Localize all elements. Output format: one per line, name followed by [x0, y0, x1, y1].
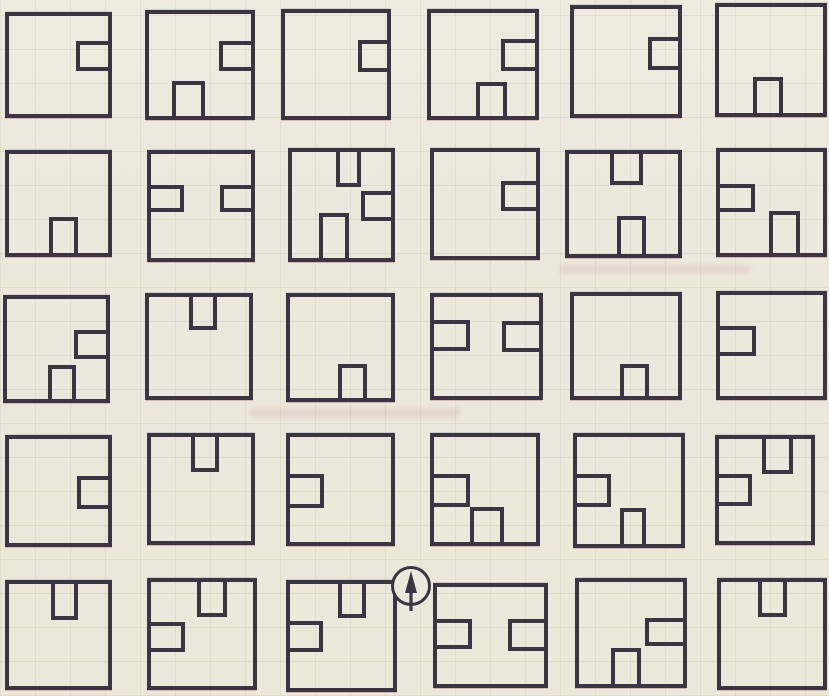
bleedthrough-smudge [560, 265, 750, 274]
puzzle-square-r1c5 [716, 148, 827, 257]
inner-square-top [191, 437, 219, 472]
puzzle-square-r4c0 [5, 580, 112, 690]
puzzle-square-r3c5 [715, 435, 815, 545]
puzzle-square-r3c1 [147, 433, 255, 545]
inner-square-bottom [753, 77, 783, 113]
inner-square-left [434, 320, 470, 352]
inner-square-right [361, 191, 391, 221]
puzzle-square-r2c4 [570, 292, 682, 400]
up-arrow-glyph [394, 569, 428, 615]
inner-square-right [77, 476, 108, 508]
inner-square-right [502, 321, 539, 353]
inner-square-left [151, 622, 185, 652]
puzzle-square-r2c5 [716, 291, 827, 400]
puzzle-square-r0c4 [570, 5, 682, 118]
puzzle-square-r2c2 [286, 293, 395, 402]
puzzle-square-r1c1 [147, 150, 255, 262]
puzzle-square-r1c2 [288, 148, 395, 262]
inner-square-right [76, 41, 108, 71]
puzzle-square-r0c3 [427, 9, 539, 120]
puzzle-square-r1c4 [565, 150, 682, 258]
inner-square-left [290, 474, 324, 509]
puzzle-square-r3c2 [286, 433, 395, 546]
puzzle-square-r4c5 [717, 578, 827, 690]
inner-square-left [434, 474, 470, 508]
puzzle-square-r2c0 [3, 295, 110, 403]
inner-square-left [720, 184, 755, 211]
inner-square-bottom [470, 507, 505, 542]
inner-square-left [290, 621, 323, 651]
puzzle-square-r4c3 [433, 583, 548, 688]
inner-square-right [648, 37, 678, 70]
inner-square-bottom [319, 213, 350, 258]
inner-square-top [197, 582, 228, 617]
inner-square-left [720, 326, 756, 355]
inner-square-top [338, 584, 366, 618]
scanned-worksheet-page [0, 0, 829, 696]
up-arrow-in-circle-icon [391, 566, 431, 606]
inner-square-bottom [338, 364, 366, 398]
inner-square-top [758, 582, 788, 617]
inner-square-right [220, 185, 251, 212]
puzzle-square-r0c5 [715, 3, 827, 117]
inner-square-top [762, 439, 792, 474]
puzzle-square-r4c2 [286, 580, 397, 692]
inner-square-left [151, 185, 184, 212]
puzzle-square-r2c1 [145, 293, 253, 400]
inner-square-bottom [611, 648, 641, 684]
puzzle-square-r4c1 [147, 578, 257, 690]
inner-square-right [501, 181, 536, 211]
puzzle-square-r0c0 [5, 12, 112, 118]
puzzle-square-r4c4 [575, 578, 687, 688]
inner-square-right [358, 40, 387, 72]
inner-square-top [336, 152, 362, 187]
inner-square-bottom [620, 508, 646, 544]
inner-square-bottom [769, 211, 800, 253]
inner-square-bottom [48, 365, 77, 399]
inner-square-left [437, 619, 472, 649]
puzzle-square-r3c0 [5, 435, 112, 547]
inner-square-bottom [49, 217, 79, 253]
inner-square-right [74, 330, 106, 359]
puzzle-square-r0c2 [281, 9, 391, 120]
puzzle-square-r1c0 [5, 150, 112, 257]
inner-square-bottom [617, 216, 646, 254]
puzzle-square-r3c4 [573, 433, 685, 548]
inner-square-bottom [172, 81, 205, 116]
puzzle-square-r1c3 [430, 148, 540, 260]
bleedthrough-smudge [250, 408, 460, 417]
inner-square-top [51, 584, 79, 620]
inner-square-left [577, 474, 611, 506]
puzzle-square-r3c3 [430, 433, 540, 546]
inner-square-top [610, 154, 643, 185]
puzzle-square-r2c3 [430, 293, 543, 400]
inner-square-right [645, 618, 683, 647]
inner-square-top [189, 297, 217, 330]
puzzle-square-r0c1 [145, 10, 255, 120]
inner-square-left [719, 474, 752, 507]
inner-square-bottom [476, 82, 507, 116]
inner-square-right [508, 619, 544, 651]
inner-square-right [501, 39, 535, 71]
inner-square-right [219, 41, 251, 72]
inner-square-bottom [620, 364, 649, 396]
